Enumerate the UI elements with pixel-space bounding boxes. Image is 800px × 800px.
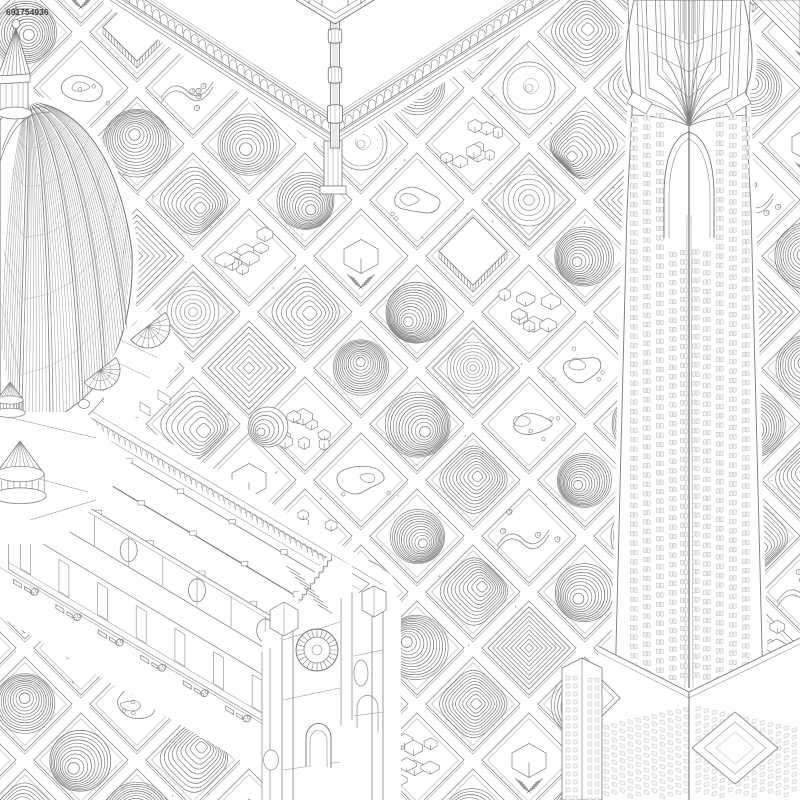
svg-text:691754936: 691754936	[6, 7, 49, 17]
